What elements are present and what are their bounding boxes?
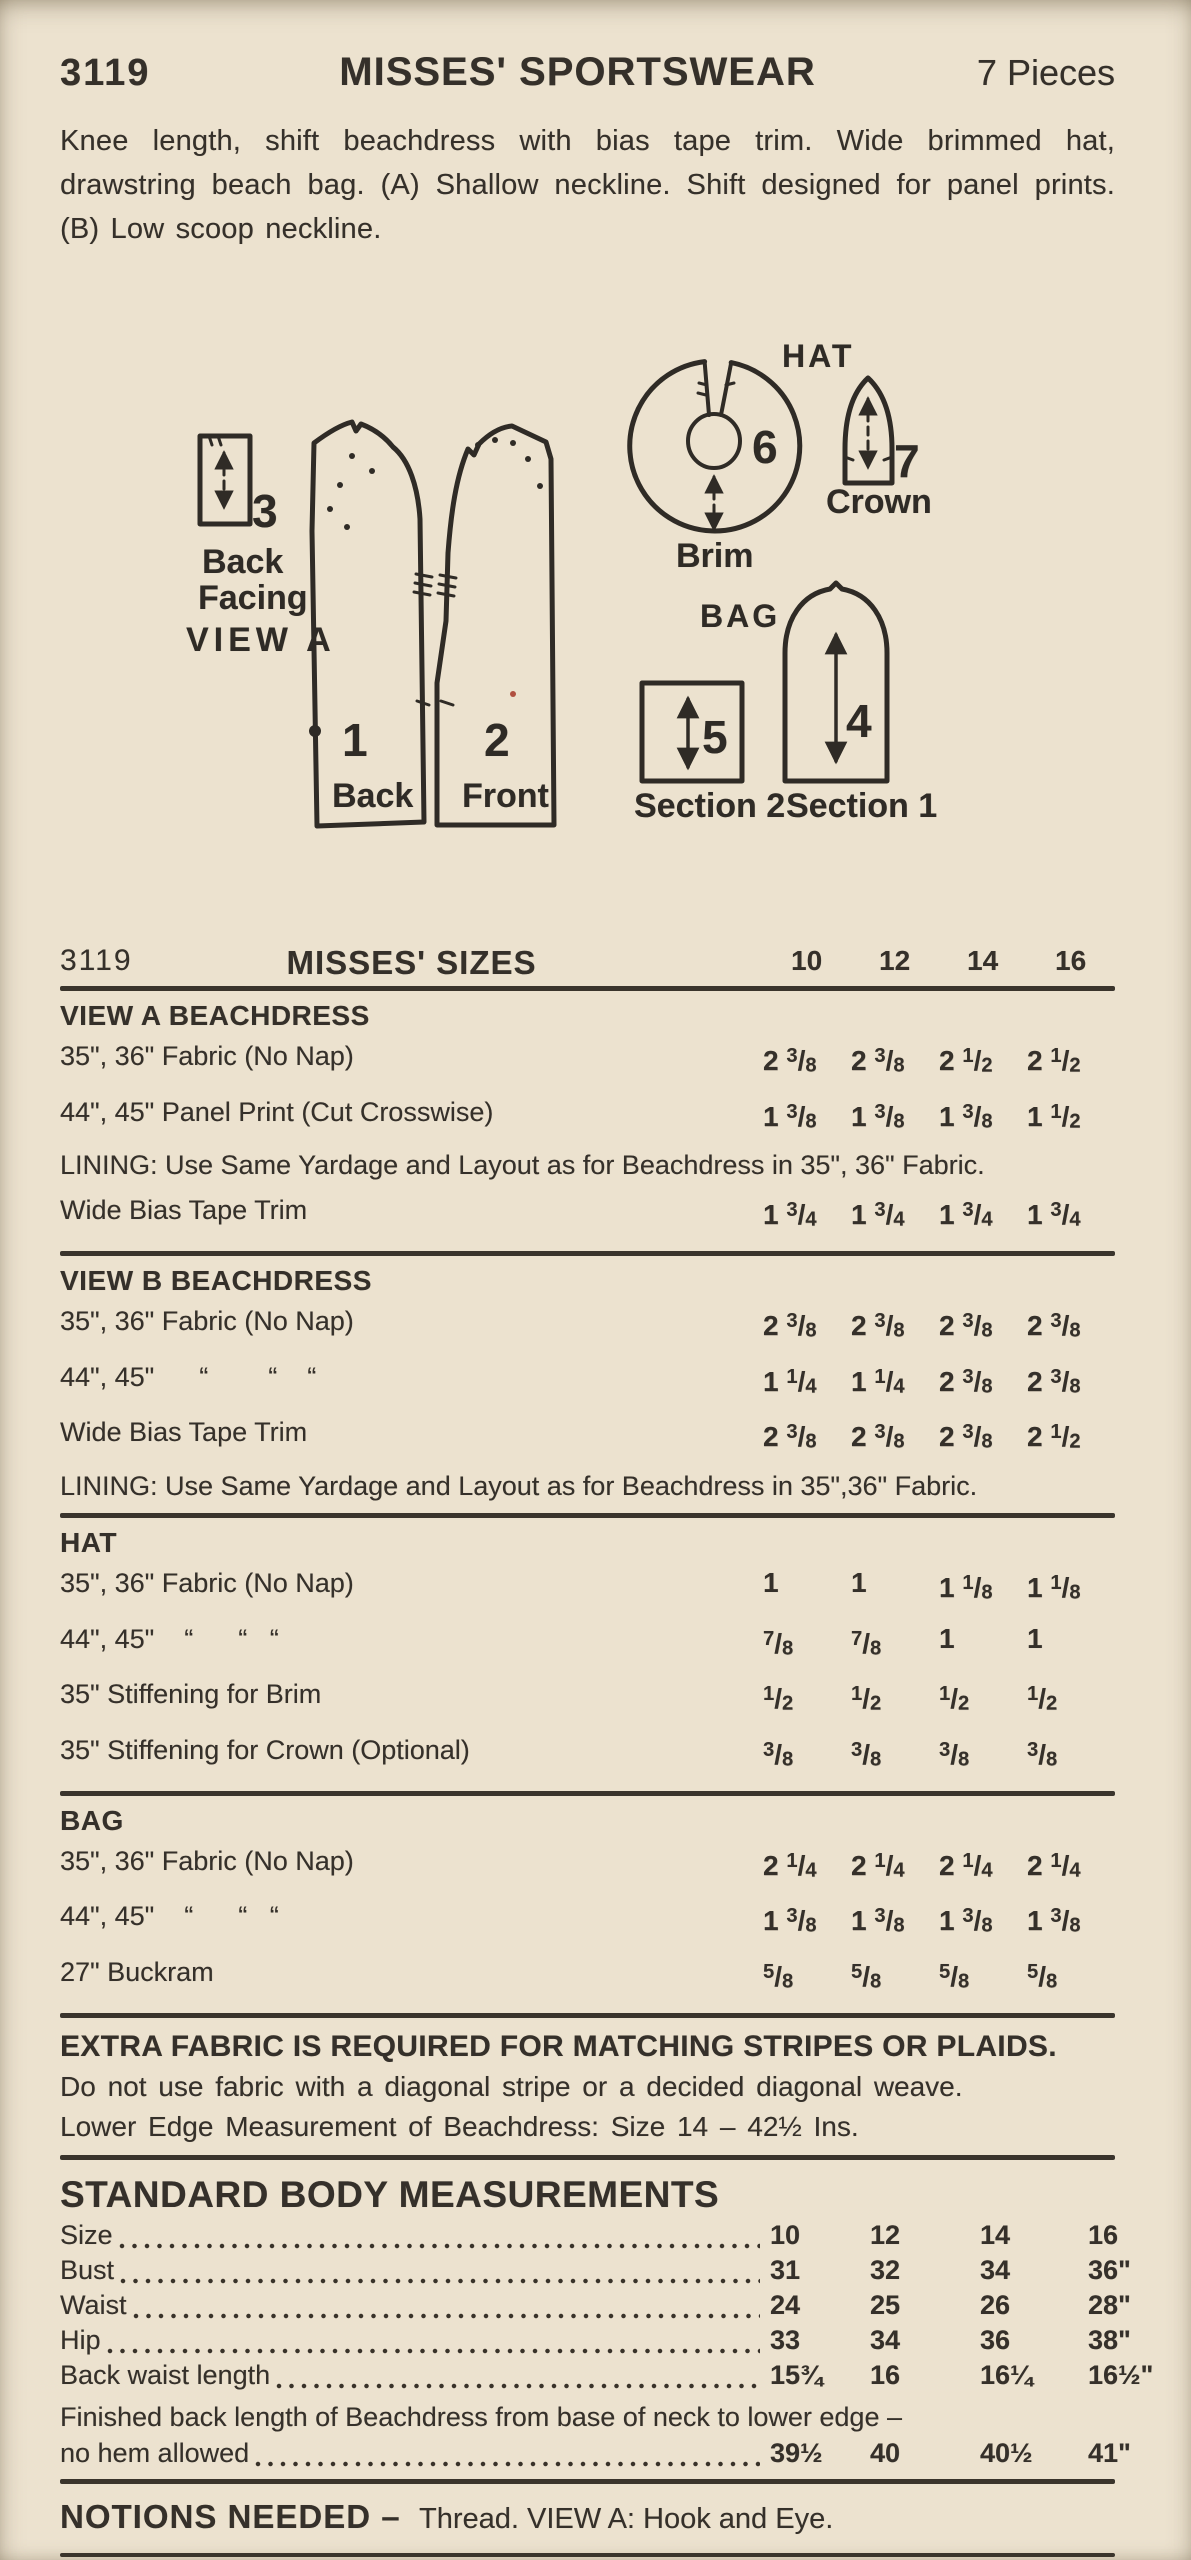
divider: [60, 2155, 1115, 2160]
measurement-value: 16: [870, 2358, 980, 2393]
finished-length-note: Finished back length of Beachdress from …: [60, 2399, 1115, 2436]
piece-number-3: 3: [252, 485, 278, 537]
measurement-value: 16: [1088, 2218, 1118, 2253]
section-heading-view-a: VIEW A BEACHDRESS: [60, 999, 1115, 1033]
size-col-10: 10: [763, 945, 851, 977]
measurement-row: no hem allowed 39½ 40 40½ 41": [60, 2436, 1115, 2471]
yardage-value: 1: [1027, 1616, 1115, 1672]
yardage-value: 1 3/4: [763, 1187, 851, 1243]
measurement-value: 34: [980, 2253, 1088, 2288]
yardage-value: 1 3/8: [763, 1893, 851, 1949]
yardage-value: 1 3/8: [939, 1089, 1027, 1145]
sewing-pattern-sheet: 3119 MISSES' SPORTSWEAR 7 Pieces Knee le…: [0, 0, 1191, 2560]
measurement-value: 16½": [1088, 2358, 1153, 2393]
back-facing-label-2: Facing: [198, 579, 308, 617]
measurement-label: Bust: [60, 2253, 114, 2288]
bag-section1-label: Section 1: [786, 787, 937, 825]
piece-number-2: 2: [484, 714, 510, 766]
leader-dots: [119, 2242, 760, 2250]
row-label: Wide Bias Tape Trim: [60, 1187, 763, 1243]
notions-section: NOTIONS NEEDED – Thread. VIEW A: Hook an…: [60, 2496, 1115, 2545]
measurement-label: Waist: [60, 2288, 127, 2323]
piece-number-1: 1: [342, 714, 368, 766]
bag-section2-label: Section 2: [634, 787, 785, 825]
table-row: 44", 45" “ “ “ 1 1/4 1 1/4 2 3/8 2 3/8: [60, 1354, 1115, 1410]
section-heading-bag: BAG: [60, 1804, 1115, 1838]
divider: [60, 1251, 1115, 1256]
dress-back-label: Back: [332, 777, 413, 815]
header: 3119 MISSES' SPORTSWEAR 7 Pieces: [60, 0, 1115, 95]
yardage-value: 7/8: [851, 1616, 939, 1672]
section-heading-view-b: VIEW B BEACHDRESS: [60, 1264, 1115, 1298]
measurement-value: 25: [870, 2288, 980, 2323]
hat-group-label: HAT: [782, 338, 854, 374]
yardage-value: 1 1/4: [851, 1354, 939, 1410]
leader-dots: [107, 2347, 760, 2355]
row-label: 35", 36" Fabric (No Nap): [60, 1298, 763, 1354]
yardage-value: 2 3/8: [939, 1409, 1027, 1465]
table-row: 35", 36" Fabric (No Nap) 2 1/4 2 1/4 2 1…: [60, 1838, 1115, 1894]
table-row: 35", 36" Fabric (No Nap) 2 3/8 2 3/8 2 1…: [60, 1033, 1115, 1089]
yardage-value: 1 3/8: [851, 1089, 939, 1145]
measurement-value: 32: [870, 2253, 980, 2288]
piece-number-5: 5: [702, 711, 728, 763]
yardage-value: 2 1/2: [1027, 1409, 1115, 1465]
measurement-value: 28": [1088, 2288, 1131, 2323]
row-label: 35", 36" Fabric (No Nap): [60, 1838, 763, 1894]
measurement-value: 10: [770, 2218, 870, 2253]
yardage-value: 1 3/4: [851, 1187, 939, 1243]
row-label: 35" Stiffening for Crown (Optional): [60, 1727, 763, 1783]
yardage-value: 2 3/8: [851, 1409, 939, 1465]
back-facing-label-1: Back: [202, 543, 283, 581]
yardage-value: 3/8: [851, 1727, 939, 1783]
measurement-label: Size: [60, 2218, 113, 2253]
measurement-row: Hip 33 34 36 38": [60, 2323, 1115, 2358]
table-row: 35" Stiffening for Brim 1/2 1/2 1/2 1/2: [60, 1671, 1115, 1727]
measurement-value: 34: [870, 2323, 980, 2358]
measurement-value: 16¼: [980, 2358, 1088, 2393]
yardage-value: 2 3/8: [763, 1298, 851, 1354]
table-row: 44", 45" “ “ “ 1 3/8 1 3/8 1 3/8 1 3/8: [60, 1893, 1115, 1949]
notions-text: Thread. VIEW A: Hook and Eye.: [419, 2503, 833, 2535]
yardage-value: 2 3/8: [939, 1354, 1027, 1410]
yardage-value: 1 3/8: [1027, 1893, 1115, 1949]
leader-dots: [133, 2312, 761, 2320]
bag-group-label: BAG: [700, 598, 780, 634]
pieces-count: 7 Pieces: [895, 52, 1115, 94]
measurement-value: 26: [980, 2288, 1088, 2323]
yardage-value: 5/8: [939, 1949, 1027, 2005]
divider: [60, 986, 1115, 991]
yardage-value: 1 3/4: [939, 1187, 1027, 1243]
measurement-value: 15¾: [770, 2358, 870, 2393]
measurement-value: 39½: [770, 2436, 870, 2471]
measurement-value: 41": [1088, 2436, 1131, 2471]
pattern-number: 3119: [60, 52, 260, 95]
yardage-value: 3/8: [939, 1727, 1027, 1783]
yardage-value: 1 1/2: [1027, 1089, 1115, 1145]
yardage-value: 1: [939, 1616, 1027, 1672]
yardage-value: 1: [851, 1560, 939, 1616]
lower-edge-note: Lower Edge Measurement of Beachdress: Si…: [60, 2107, 1115, 2147]
measurement-value: 40½: [980, 2436, 1088, 2471]
extra-fabric-note: EXTRA FABRIC IS REQUIRED FOR MATCHING ST…: [60, 2027, 1115, 2067]
measurements-title: STANDARD BODY MEASUREMENTS: [60, 2172, 1115, 2218]
measurement-row: Bust 31 32 34 36": [60, 2253, 1115, 2288]
size-col-16: 16: [1027, 945, 1115, 977]
view-a-label: VIEW A: [186, 621, 336, 659]
measurement-row: Size 10 12 14 16: [60, 2218, 1115, 2253]
divider: [60, 1791, 1115, 1796]
table-row: 35", 36" Fabric (No Nap) 1 1 1 1/8 1 1/8: [60, 1560, 1115, 1616]
yardage-value: 2 1/4: [939, 1838, 1027, 1894]
yardage-value: 1 1/8: [1027, 1560, 1115, 1616]
yardage-value: 2 1/4: [763, 1838, 851, 1894]
table-row: Wide Bias Tape Trim 1 3/4 1 3/4 1 3/4 1 …: [60, 1187, 1115, 1243]
table-row: Wide Bias Tape Trim 2 3/8 2 3/8 2 3/8 2 …: [60, 1409, 1115, 1465]
garment-description: Knee length, shift beachdress with bias …: [60, 119, 1115, 251]
row-label: Wide Bias Tape Trim: [60, 1409, 763, 1465]
row-label: 44", 45" “ “ “: [60, 1893, 763, 1949]
brim-label: Brim: [676, 537, 753, 575]
measurement-value: 24: [770, 2288, 870, 2323]
yardage-value: 5/8: [763, 1949, 851, 2005]
yardage-value: 1 3/8: [851, 1893, 939, 1949]
row-label: 44", 45" “ “ “: [60, 1616, 763, 1672]
piece-number-6: 6: [752, 421, 778, 473]
yardage-value: 3/8: [763, 1727, 851, 1783]
divider: [60, 1513, 1115, 1518]
yardage-value: 1: [763, 1560, 851, 1616]
measurement-value: 36": [1088, 2253, 1131, 2288]
lining-note-view-a: LINING: Use Same Yardage and Layout as f…: [60, 1147, 1115, 1184]
measurement-value: 31: [770, 2253, 870, 2288]
row-label: 44", 45" Panel Print (Cut Crosswise): [60, 1089, 763, 1145]
table-row: 27" Buckram 5/8 5/8 5/8 5/8: [60, 1949, 1115, 2005]
measurement-row: Waist 24 25 26 28": [60, 2288, 1115, 2323]
yardage-value: 2 1/4: [1027, 1838, 1115, 1894]
yardage-value: 2 3/8: [763, 1409, 851, 1465]
dress-front-label: Front: [462, 777, 549, 815]
table-row: 35", 36" Fabric (No Nap) 2 3/8 2 3/8 2 3…: [60, 1298, 1115, 1354]
yardage-value: 1/2: [763, 1671, 851, 1727]
size-col-14: 14: [939, 945, 1027, 977]
divider: [60, 2553, 1115, 2557]
yardage-value: 5/8: [851, 1949, 939, 2005]
yardage-value: 1 3/8: [939, 1893, 1027, 1949]
row-label: 35", 36" Fabric (No Nap): [60, 1033, 763, 1089]
yardage-value: 7/8: [763, 1616, 851, 1672]
crown-label: Crown: [826, 483, 932, 521]
yardage-value: 2 1/4: [851, 1838, 939, 1894]
yardage-value: 2 3/8: [1027, 1298, 1115, 1354]
table-title: MISSES' SIZES: [60, 944, 763, 982]
divider: [60, 2013, 1115, 2018]
measurement-value: 14: [980, 2218, 1088, 2253]
yardage-value: 2 1/2: [939, 1033, 1027, 1089]
yardage-value: 1 3/4: [1027, 1187, 1115, 1243]
measurement-value: 12: [870, 2218, 980, 2253]
yardage-table-header: 3119 MISSES' SIZES 10 12 14 16: [60, 944, 1115, 978]
table-row: 44", 45" Panel Print (Cut Crosswise) 1 3…: [60, 1089, 1115, 1145]
row-label: 35" Stiffening for Brim: [60, 1671, 763, 1727]
measurement-row: Back waist length 15¾ 16 16¼ 16½": [60, 2358, 1115, 2393]
size-col-12: 12: [851, 945, 939, 977]
yardage-value: 1/2: [851, 1671, 939, 1727]
measurement-label: no hem allowed: [60, 2436, 249, 2471]
yardage-value: 2 3/8: [1027, 1354, 1115, 1410]
yardage-value: 1 1/8: [939, 1560, 1027, 1616]
measurement-value: 33: [770, 2323, 870, 2358]
measurement-value: 36: [980, 2323, 1088, 2358]
section-heading-hat: HAT: [60, 1526, 1115, 1560]
yardage-value: 2 1/2: [1027, 1033, 1115, 1089]
yardage-value: 2 3/8: [763, 1033, 851, 1089]
table-row: 35" Stiffening for Crown (Optional) 3/8 …: [60, 1727, 1115, 1783]
yardage-value: 5/8: [1027, 1949, 1115, 2005]
page-title: MISSES' SPORTSWEAR: [260, 50, 895, 95]
leader-dots: [276, 2382, 760, 2390]
diagonal-note: Do not use fabric with a diagonal stripe…: [60, 2067, 1115, 2107]
row-label: 27" Buckram: [60, 1949, 763, 2005]
yardage-value: 3/8: [1027, 1727, 1115, 1783]
yardage-value: 1/2: [939, 1671, 1027, 1727]
table-row: 44", 45" “ “ “ 7/8 7/8 1 1: [60, 1616, 1115, 1672]
yardage-value: 2 3/8: [851, 1298, 939, 1354]
divider: [60, 2479, 1115, 2484]
yardage-value: 1 1/4: [763, 1354, 851, 1410]
leader-dots: [120, 2277, 760, 2285]
piece-number-7: 7: [894, 435, 920, 487]
lining-note-view-b: LINING: Use Same Yardage and Layout as f…: [60, 1468, 1115, 1505]
pattern-pieces-diagram: 3 Back Facing VIEW A 1 Back 2 Front HAT …: [0, 291, 1115, 926]
row-label: 44", 45" “ “ “: [60, 1354, 763, 1410]
measurement-value: 38": [1088, 2323, 1131, 2358]
piece-number-4: 4: [846, 695, 872, 747]
leader-dots: [255, 2460, 760, 2468]
yardage-value: 1/2: [1027, 1671, 1115, 1727]
notions-title: NOTIONS NEEDED –: [60, 2498, 401, 2535]
yardage-value: 2 3/8: [851, 1033, 939, 1089]
measurement-value: 40: [870, 2436, 980, 2471]
measurement-label: Back waist length: [60, 2358, 270, 2393]
row-label: 35", 36" Fabric (No Nap): [60, 1560, 763, 1616]
measurement-label: Hip: [60, 2323, 101, 2358]
yardage-value: 1 3/8: [763, 1089, 851, 1145]
yardage-value: 2 3/8: [939, 1298, 1027, 1354]
